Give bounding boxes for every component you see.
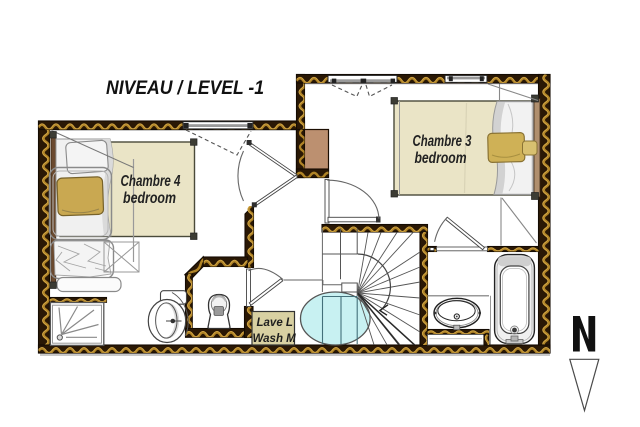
svg-text:bedroom: bedroom (123, 190, 176, 207)
svg-text:Chambre 4: Chambre 4 (121, 173, 181, 190)
svg-text:NIVEAU / LEVEL -1: NIVEAU / LEVEL -1 (106, 77, 264, 99)
svg-text:Wash M: Wash M (253, 333, 297, 345)
svg-text:Lave L: Lave L (257, 317, 293, 329)
svg-text:bedroom: bedroom (415, 150, 467, 167)
svg-text:Chambre 3: Chambre 3 (413, 133, 472, 150)
